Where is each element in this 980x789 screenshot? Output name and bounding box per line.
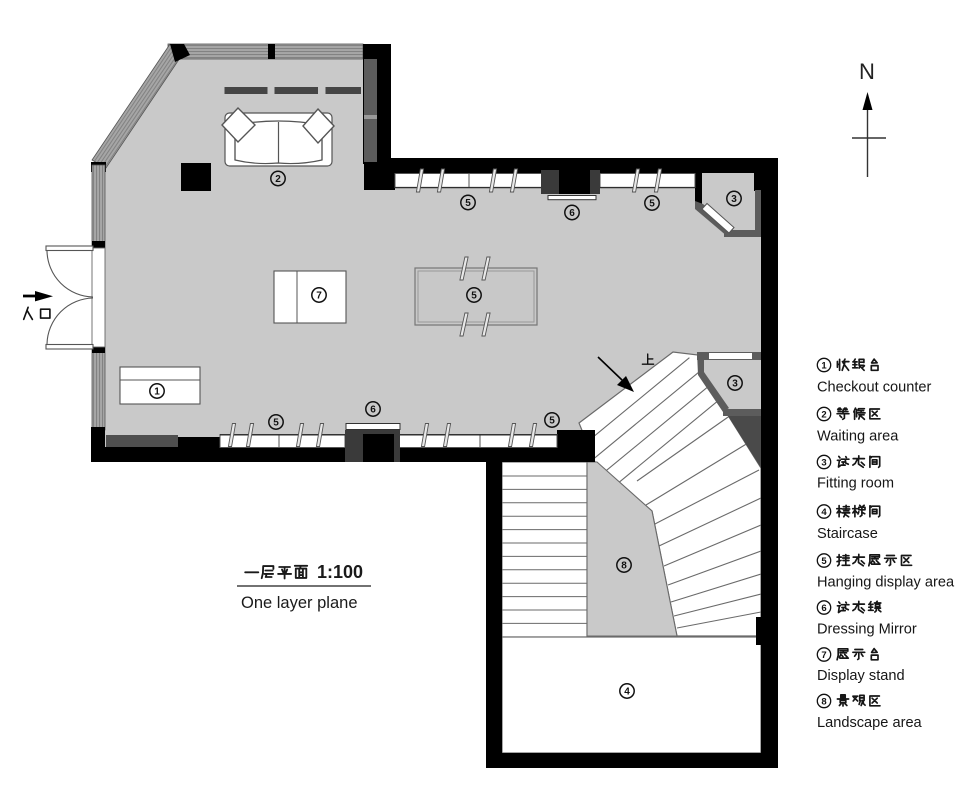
svg-text:8: 8 (621, 561, 627, 572)
svg-text:3: 3 (731, 194, 737, 205)
svg-text:7: 7 (316, 291, 322, 302)
svg-text:Fitting room: Fitting room (817, 476, 894, 492)
svg-text:7: 7 (821, 650, 826, 661)
svg-text:Staircase: Staircase (817, 526, 878, 542)
svg-text:8: 8 (821, 696, 826, 707)
svg-text:Waiting area: Waiting area (817, 429, 899, 445)
svg-text:Landscape area: Landscape area (817, 715, 923, 731)
svg-text:2: 2 (821, 409, 826, 420)
svg-text:6: 6 (569, 208, 575, 219)
svg-text:1:100: 1:100 (317, 562, 363, 582)
svg-text:One layer plane: One layer plane (241, 594, 358, 612)
svg-text:3: 3 (821, 457, 826, 468)
svg-text:4: 4 (821, 507, 827, 518)
svg-text:1: 1 (154, 387, 160, 398)
svg-text:5: 5 (821, 556, 827, 567)
svg-text:Checkout counter: Checkout counter (817, 380, 932, 396)
svg-text:N: N (859, 59, 875, 84)
svg-text:1: 1 (821, 360, 827, 371)
svg-text:Hanging display area: Hanging display area (817, 575, 955, 591)
svg-text:Display stand: Display stand (817, 668, 905, 684)
svg-text:4: 4 (624, 687, 630, 698)
svg-text:5: 5 (273, 418, 279, 429)
svg-text:2: 2 (275, 174, 281, 185)
svg-text:5: 5 (549, 416, 555, 427)
svg-text:5: 5 (471, 291, 477, 302)
svg-text:3: 3 (732, 379, 738, 390)
svg-text:6: 6 (370, 405, 376, 416)
svg-text:6: 6 (821, 603, 826, 614)
svg-text:Dressing Mirror: Dressing Mirror (817, 622, 917, 638)
svg-text:5: 5 (649, 199, 655, 210)
svg-text:5: 5 (465, 198, 471, 209)
